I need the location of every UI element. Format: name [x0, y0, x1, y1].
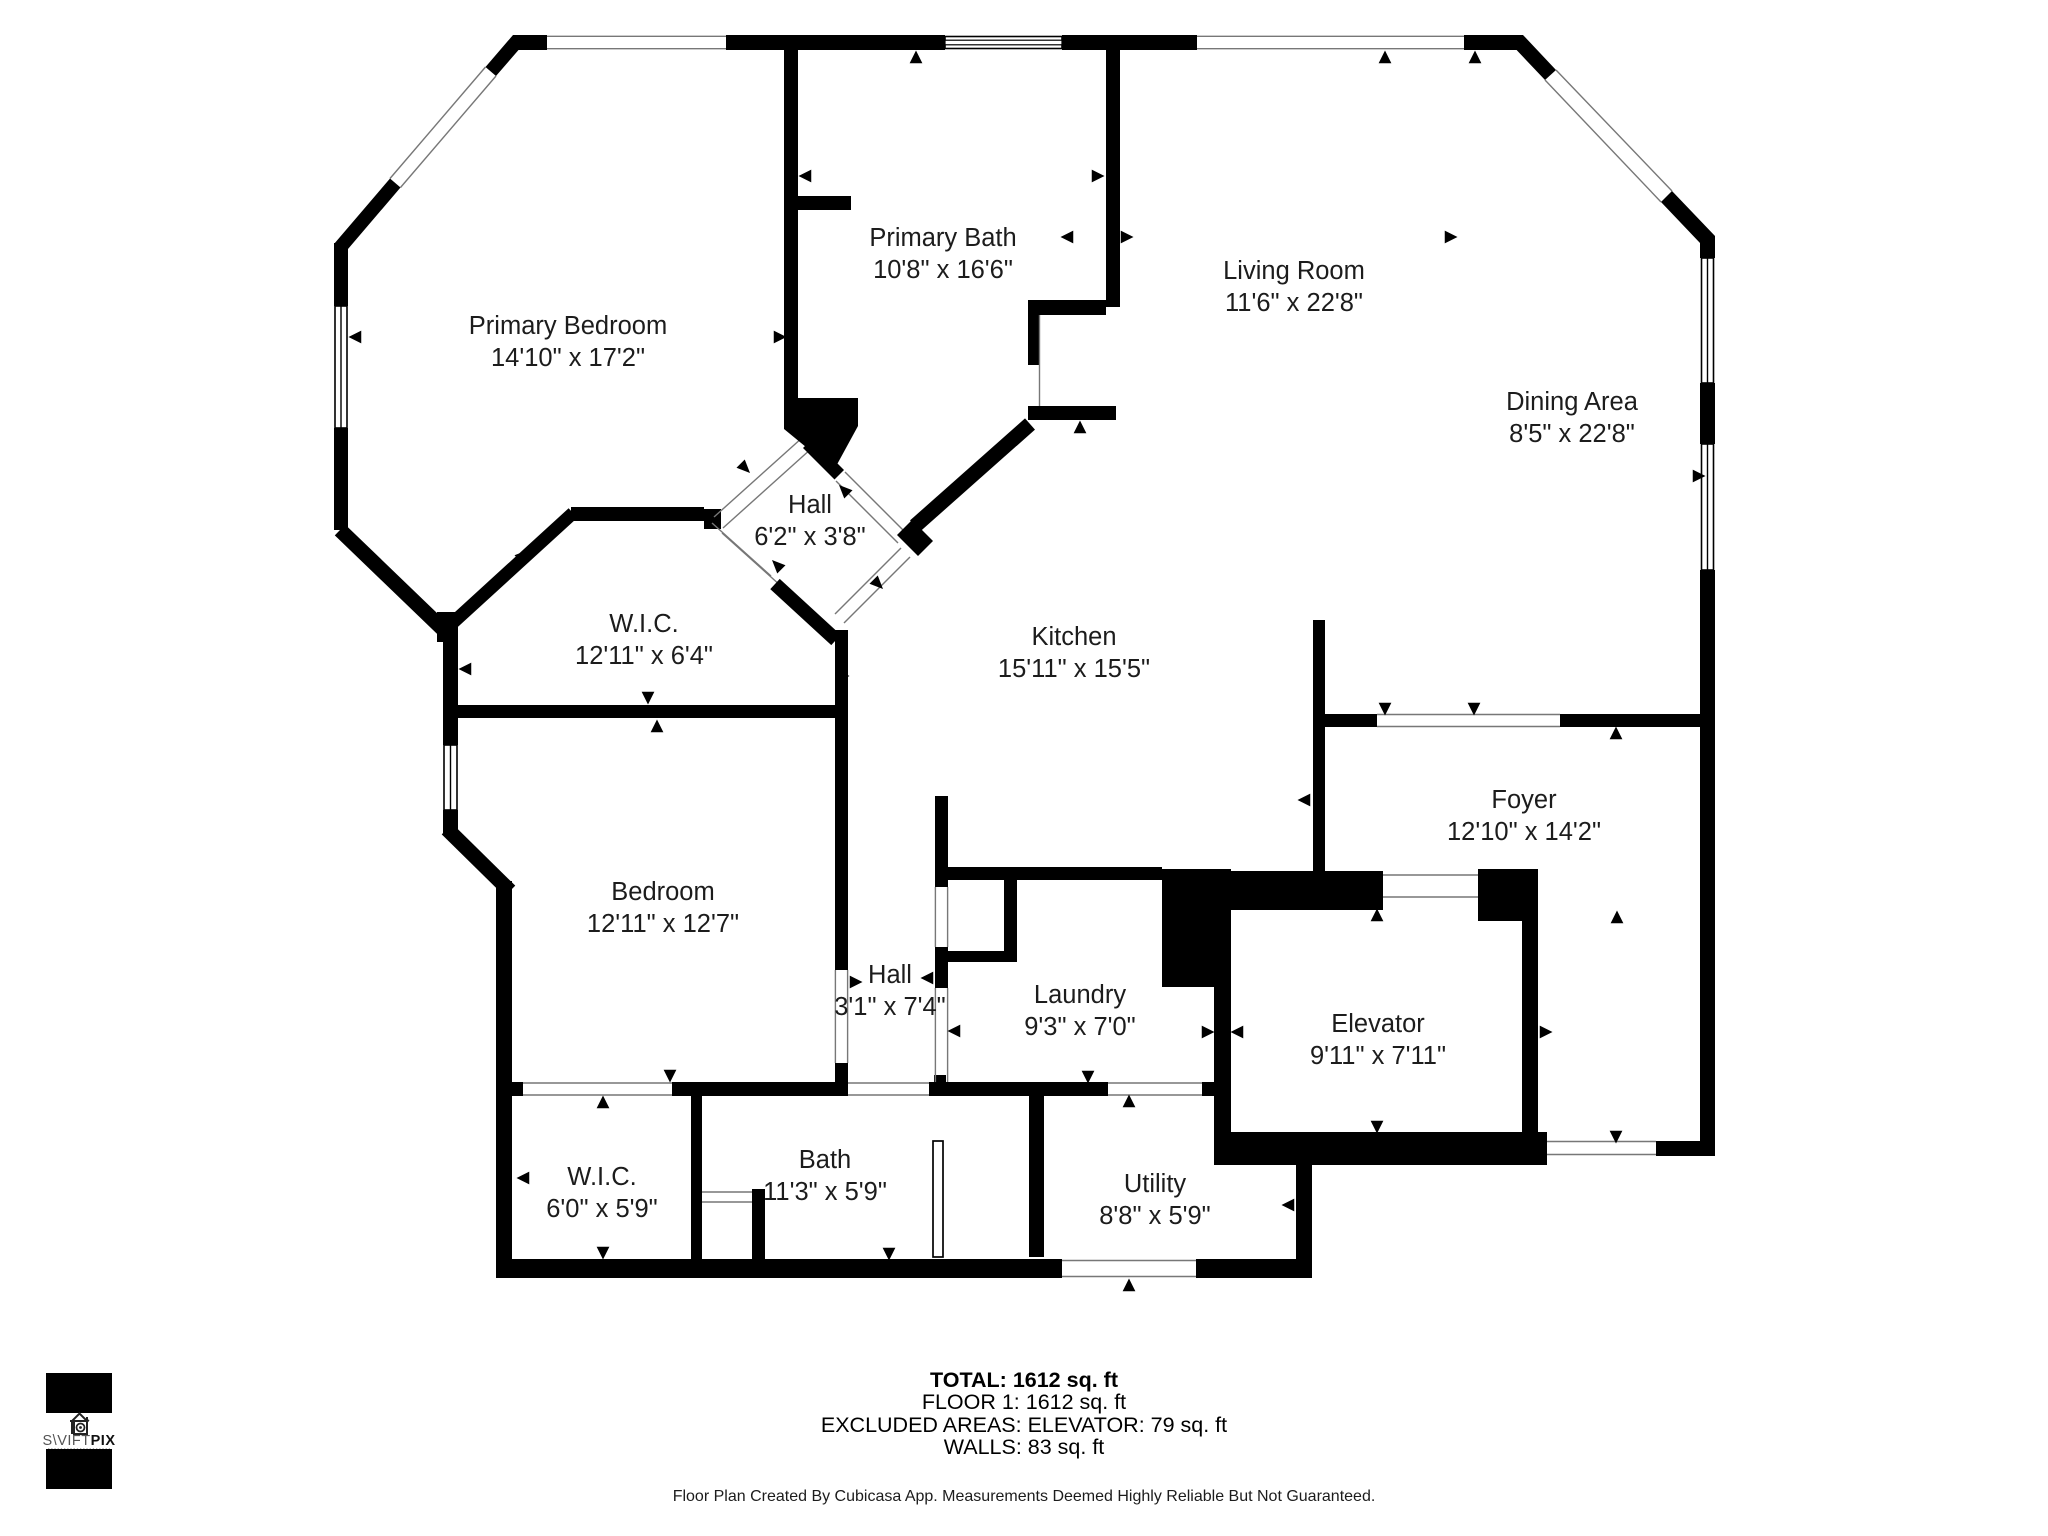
svg-text:11'3" x 5'9": 11'3" x 5'9" — [763, 1178, 887, 1206]
svg-text:S\VIFTPIX: S\VIFTPIX — [43, 1433, 116, 1449]
svg-text:TOTAL: 1612 sq. ft: TOTAL: 1612 sq. ft — [930, 1368, 1118, 1392]
svg-text:Primary Bedroom: Primary Bedroom — [469, 312, 667, 340]
svg-text:Floor Plan Created By Cubicasa: Floor Plan Created By Cubicasa App. Meas… — [673, 1488, 1376, 1505]
svg-text:9'3" x 7'0": 9'3" x 7'0" — [1024, 1013, 1136, 1041]
svg-text:Bedroom: Bedroom — [611, 878, 714, 906]
svg-text:WALLS: 83 sq. ft: WALLS: 83 sq. ft — [944, 1435, 1105, 1459]
svg-text:Utility: Utility — [1124, 1170, 1187, 1198]
svg-text:W.I.C.: W.I.C. — [609, 610, 678, 638]
svg-text:12'11" x 6'4": 12'11" x 6'4" — [575, 642, 713, 670]
svg-text:8'5" x 22'8": 8'5" x 22'8" — [1509, 420, 1635, 448]
svg-text:6'2" x 3'8": 6'2" x 3'8" — [754, 523, 866, 551]
svg-text:Primary Bath: Primary Bath — [869, 224, 1016, 252]
svg-text:6'0" x 5'9": 6'0" x 5'9" — [546, 1195, 658, 1223]
svg-text:14'10" x 17'2": 14'10" x 17'2" — [491, 344, 645, 372]
svg-text:Laundry: Laundry — [1034, 981, 1126, 1009]
svg-text:Foyer: Foyer — [1491, 786, 1557, 814]
svg-text:12'10" x 14'2": 12'10" x 14'2" — [1447, 818, 1601, 846]
svg-text:EXCLUDED AREAS: ELEVATOR: 79 s: EXCLUDED AREAS: ELEVATOR: 79 sq. ft — [821, 1413, 1227, 1437]
svg-text:Kitchen: Kitchen — [1031, 623, 1116, 651]
svg-text:Hall: Hall — [788, 491, 832, 519]
svg-text:3'1" x 7'4": 3'1" x 7'4" — [834, 993, 946, 1021]
svg-text:Elevator: Elevator — [1331, 1010, 1425, 1038]
svg-text:8'8" x 5'9": 8'8" x 5'9" — [1099, 1202, 1211, 1230]
svg-text:15'11" x 15'5": 15'11" x 15'5" — [998, 655, 1150, 683]
svg-text:10'8" x 16'6": 10'8" x 16'6" — [873, 256, 1013, 284]
svg-text:12'11" x 12'7": 12'11" x 12'7" — [587, 910, 739, 938]
svg-text:9'11" x 7'11": 9'11" x 7'11" — [1310, 1042, 1446, 1070]
svg-text:Dining Area: Dining Area — [1506, 388, 1639, 416]
svg-text:W.I.C.: W.I.C. — [567, 1163, 636, 1191]
svg-text:Hall: Hall — [868, 961, 912, 989]
svg-text:FLOOR 1: 1612 sq. ft: FLOOR 1: 1612 sq. ft — [922, 1390, 1126, 1414]
svg-text:Bath: Bath — [799, 1146, 851, 1174]
svg-text:Living Room: Living Room — [1223, 257, 1365, 285]
svg-text:11'6" x 22'8": 11'6" x 22'8" — [1225, 289, 1363, 317]
